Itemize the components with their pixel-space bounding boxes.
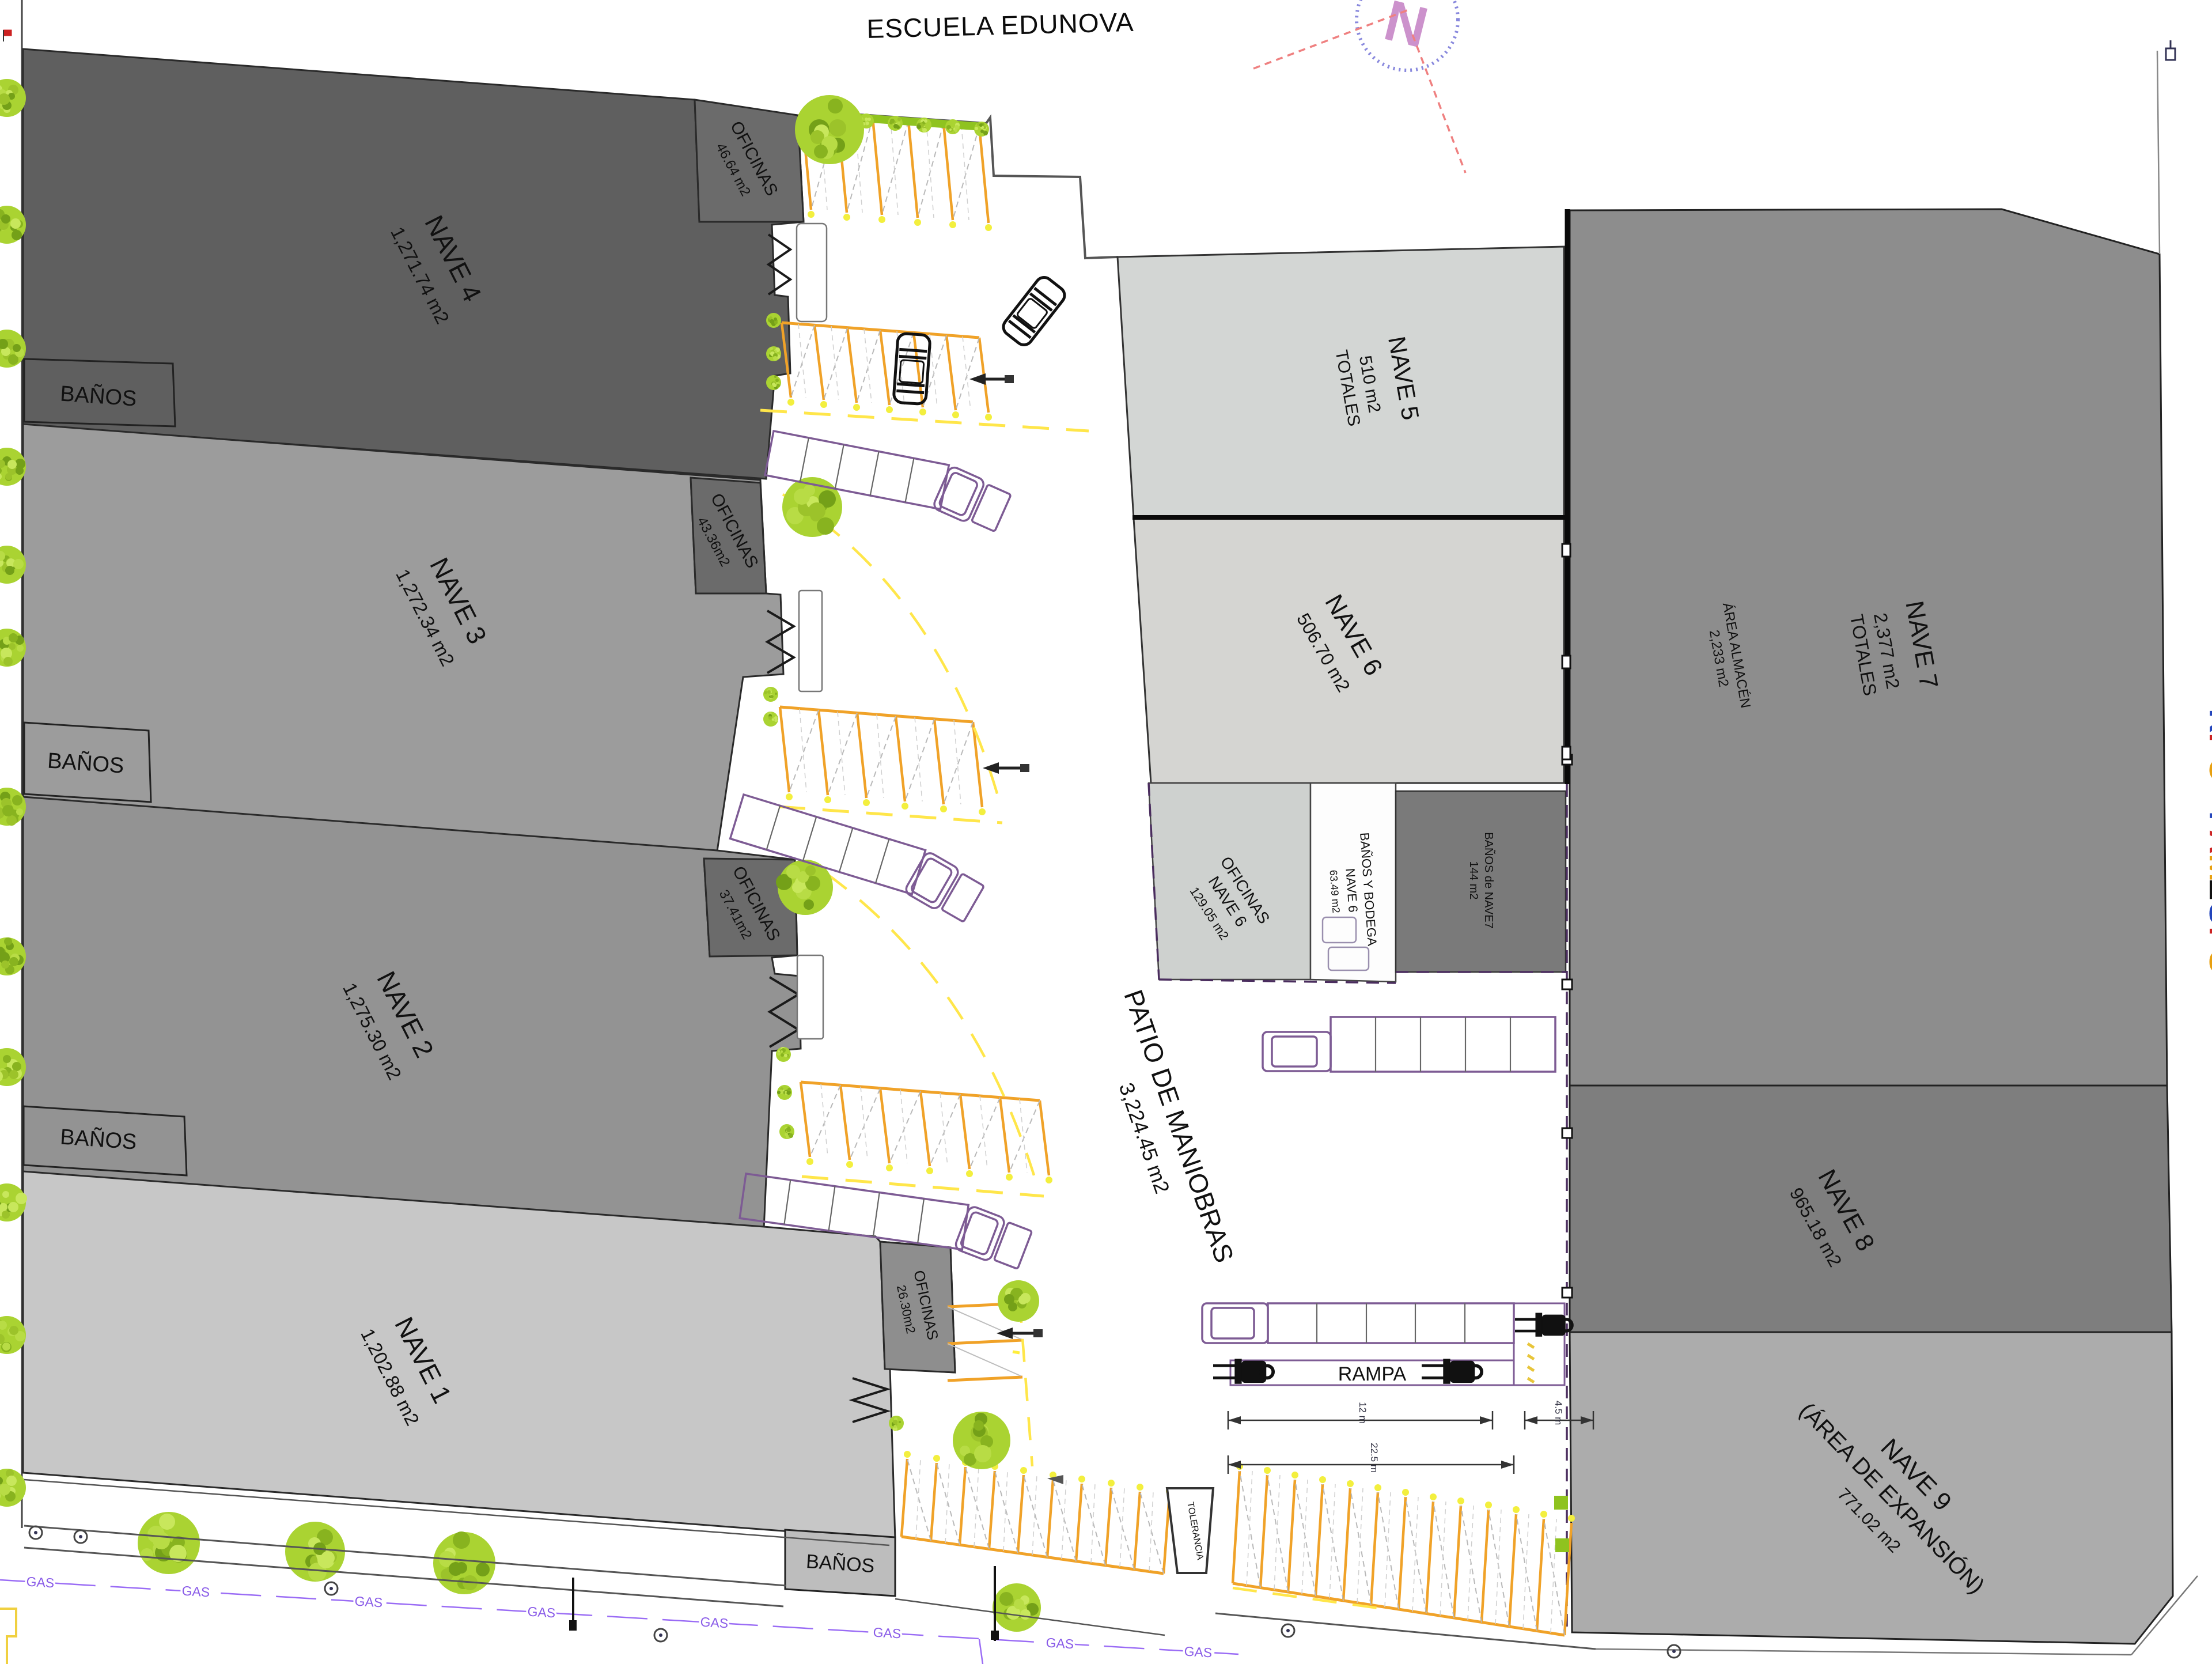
svg-text:12 m: 12 m [1357,1402,1368,1424]
svg-text:S: S [2202,902,2212,925]
svg-text:GAS: GAS [527,1604,556,1621]
svg-text:T: T [2202,805,2212,826]
svg-text:BAÑOS de NAVE7: BAÑOS de NAVE7 [1482,832,1496,928]
svg-text:I: I [2202,926,2212,936]
svg-text:144 m2: 144 m2 [1467,861,1480,900]
svg-text:GAS: GAS [1046,1635,1074,1652]
svg-text:22.5 m: 22.5 m [1369,1443,1380,1473]
svg-text:4.5 m: 4.5 m [1553,1401,1564,1425]
svg-text:GAS: GAS [354,1594,383,1610]
svg-text:GAS: GAS [26,1574,55,1591]
svg-text:GAS: GAS [181,1583,210,1600]
svg-text:O: O [2202,757,2212,783]
svg-text:GAS: GAS [1184,1644,1213,1661]
svg-text:S: S [2202,951,2212,973]
svg-text:I: I [2202,733,2212,742]
svg-text:R: R [2202,709,2212,733]
svg-text:A: A [2202,830,2212,854]
svg-text:RAMPA: RAMPA [1338,1363,1407,1385]
svg-text:GAS: GAS [873,1625,902,1642]
svg-text:GAS: GAS [700,1614,729,1631]
svg-text:E: E [2202,878,2212,901]
svg-text:NAVE 6: NAVE 6 [1343,868,1360,913]
